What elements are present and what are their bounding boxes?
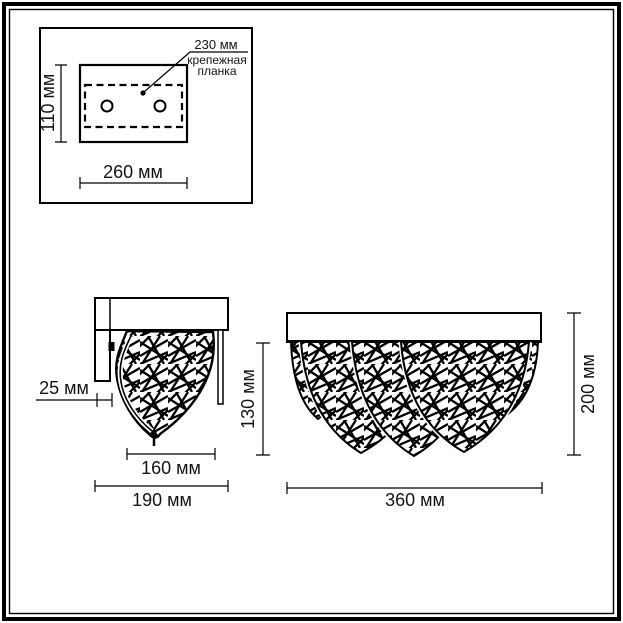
side-view-shade [116, 331, 213, 438]
callout-leader-dot [140, 90, 145, 95]
mounting-hole-right [155, 101, 166, 112]
lamp-dimensional-drawing: 230 мм крепежная планка 110 мм 260 мм 25… [0, 0, 623, 623]
label-plate-height: 110 мм [38, 74, 58, 132]
label-shade-width: 160 мм [141, 458, 201, 478]
mounting-hole-left [102, 101, 113, 112]
label-side-total-width: 190 мм [132, 490, 192, 510]
side-view-mounting-bar [95, 298, 228, 330]
label-bracket-name-line2: планка [198, 64, 237, 78]
mounting-plate [80, 65, 187, 142]
front-view-mounting-bar [287, 313, 541, 342]
label-side-depth: 25 мм [39, 378, 89, 398]
label-bracket-width: 230 мм [194, 37, 237, 52]
side-view-rod [218, 330, 223, 404]
dim-line-side-height [256, 343, 270, 455]
label-side-height: 130 мм [238, 369, 258, 429]
side-view-switch-knob [109, 342, 115, 351]
label-plate-width: 260 мм [103, 162, 163, 182]
technical-drawing-svg: 230 мм крепежная планка 110 мм 260 мм 25… [0, 0, 623, 623]
label-front-height: 200 мм [578, 354, 598, 414]
label-front-width: 360 мм [385, 490, 445, 510]
